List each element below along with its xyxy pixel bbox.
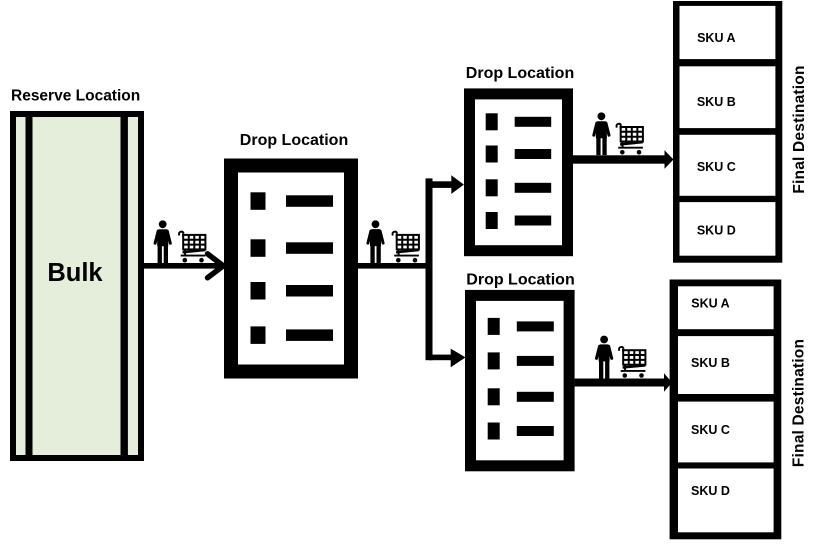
svg-text:Final Destination: Final Destination xyxy=(791,65,808,193)
svg-text:Drop Location: Drop Location xyxy=(466,272,574,289)
svg-text:SKU D: SKU D xyxy=(691,484,730,498)
svg-text:Reserve Location: Reserve Location xyxy=(11,88,140,105)
svg-text:SKU A: SKU A xyxy=(697,31,735,45)
svg-text:SKU D: SKU D xyxy=(697,224,736,238)
svg-text:Bulk: Bulk xyxy=(47,259,103,287)
svg-text:Drop Location: Drop Location xyxy=(466,65,574,82)
svg-text:Drop Location: Drop Location xyxy=(240,132,348,149)
svg-text:Final Destination: Final Destination xyxy=(790,339,807,467)
svg-text:SKU A: SKU A xyxy=(691,297,729,311)
svg-text:SKU C: SKU C xyxy=(697,160,736,174)
svg-text:SKU B: SKU B xyxy=(691,356,730,370)
svg-text:SKU B: SKU B xyxy=(697,95,736,109)
svg-text:SKU C: SKU C xyxy=(691,423,730,437)
